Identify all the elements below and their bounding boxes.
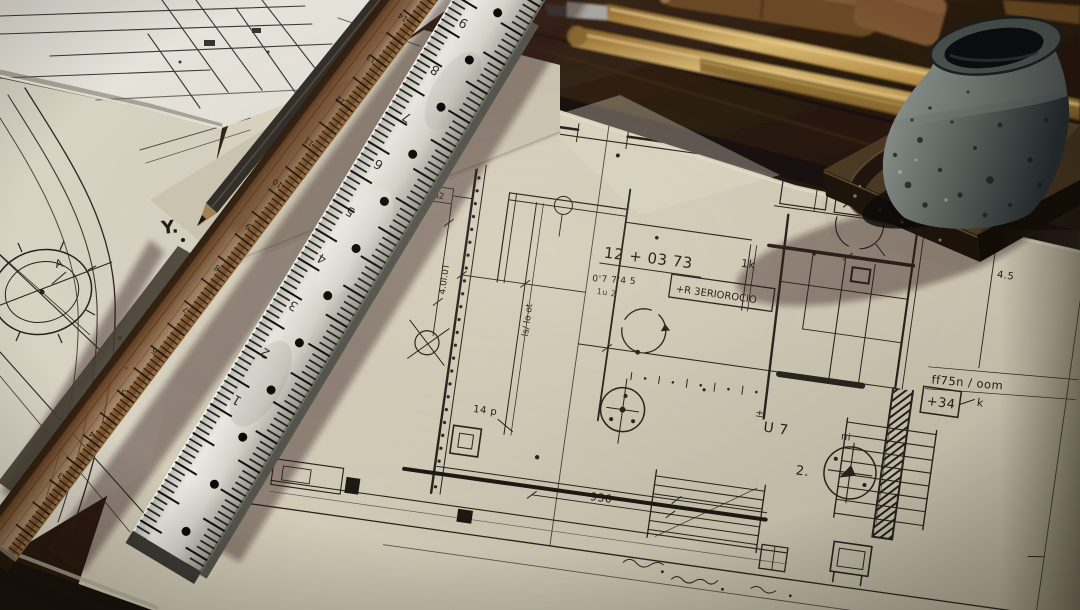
vignette xyxy=(0,0,1080,610)
drafting-table-scene: 64 4.0l.0T ls/ lo ot #9662 xyxy=(0,0,1080,610)
scene-photo: 64 4.0l.0T ls/ lo ot #9662 xyxy=(0,0,1080,610)
